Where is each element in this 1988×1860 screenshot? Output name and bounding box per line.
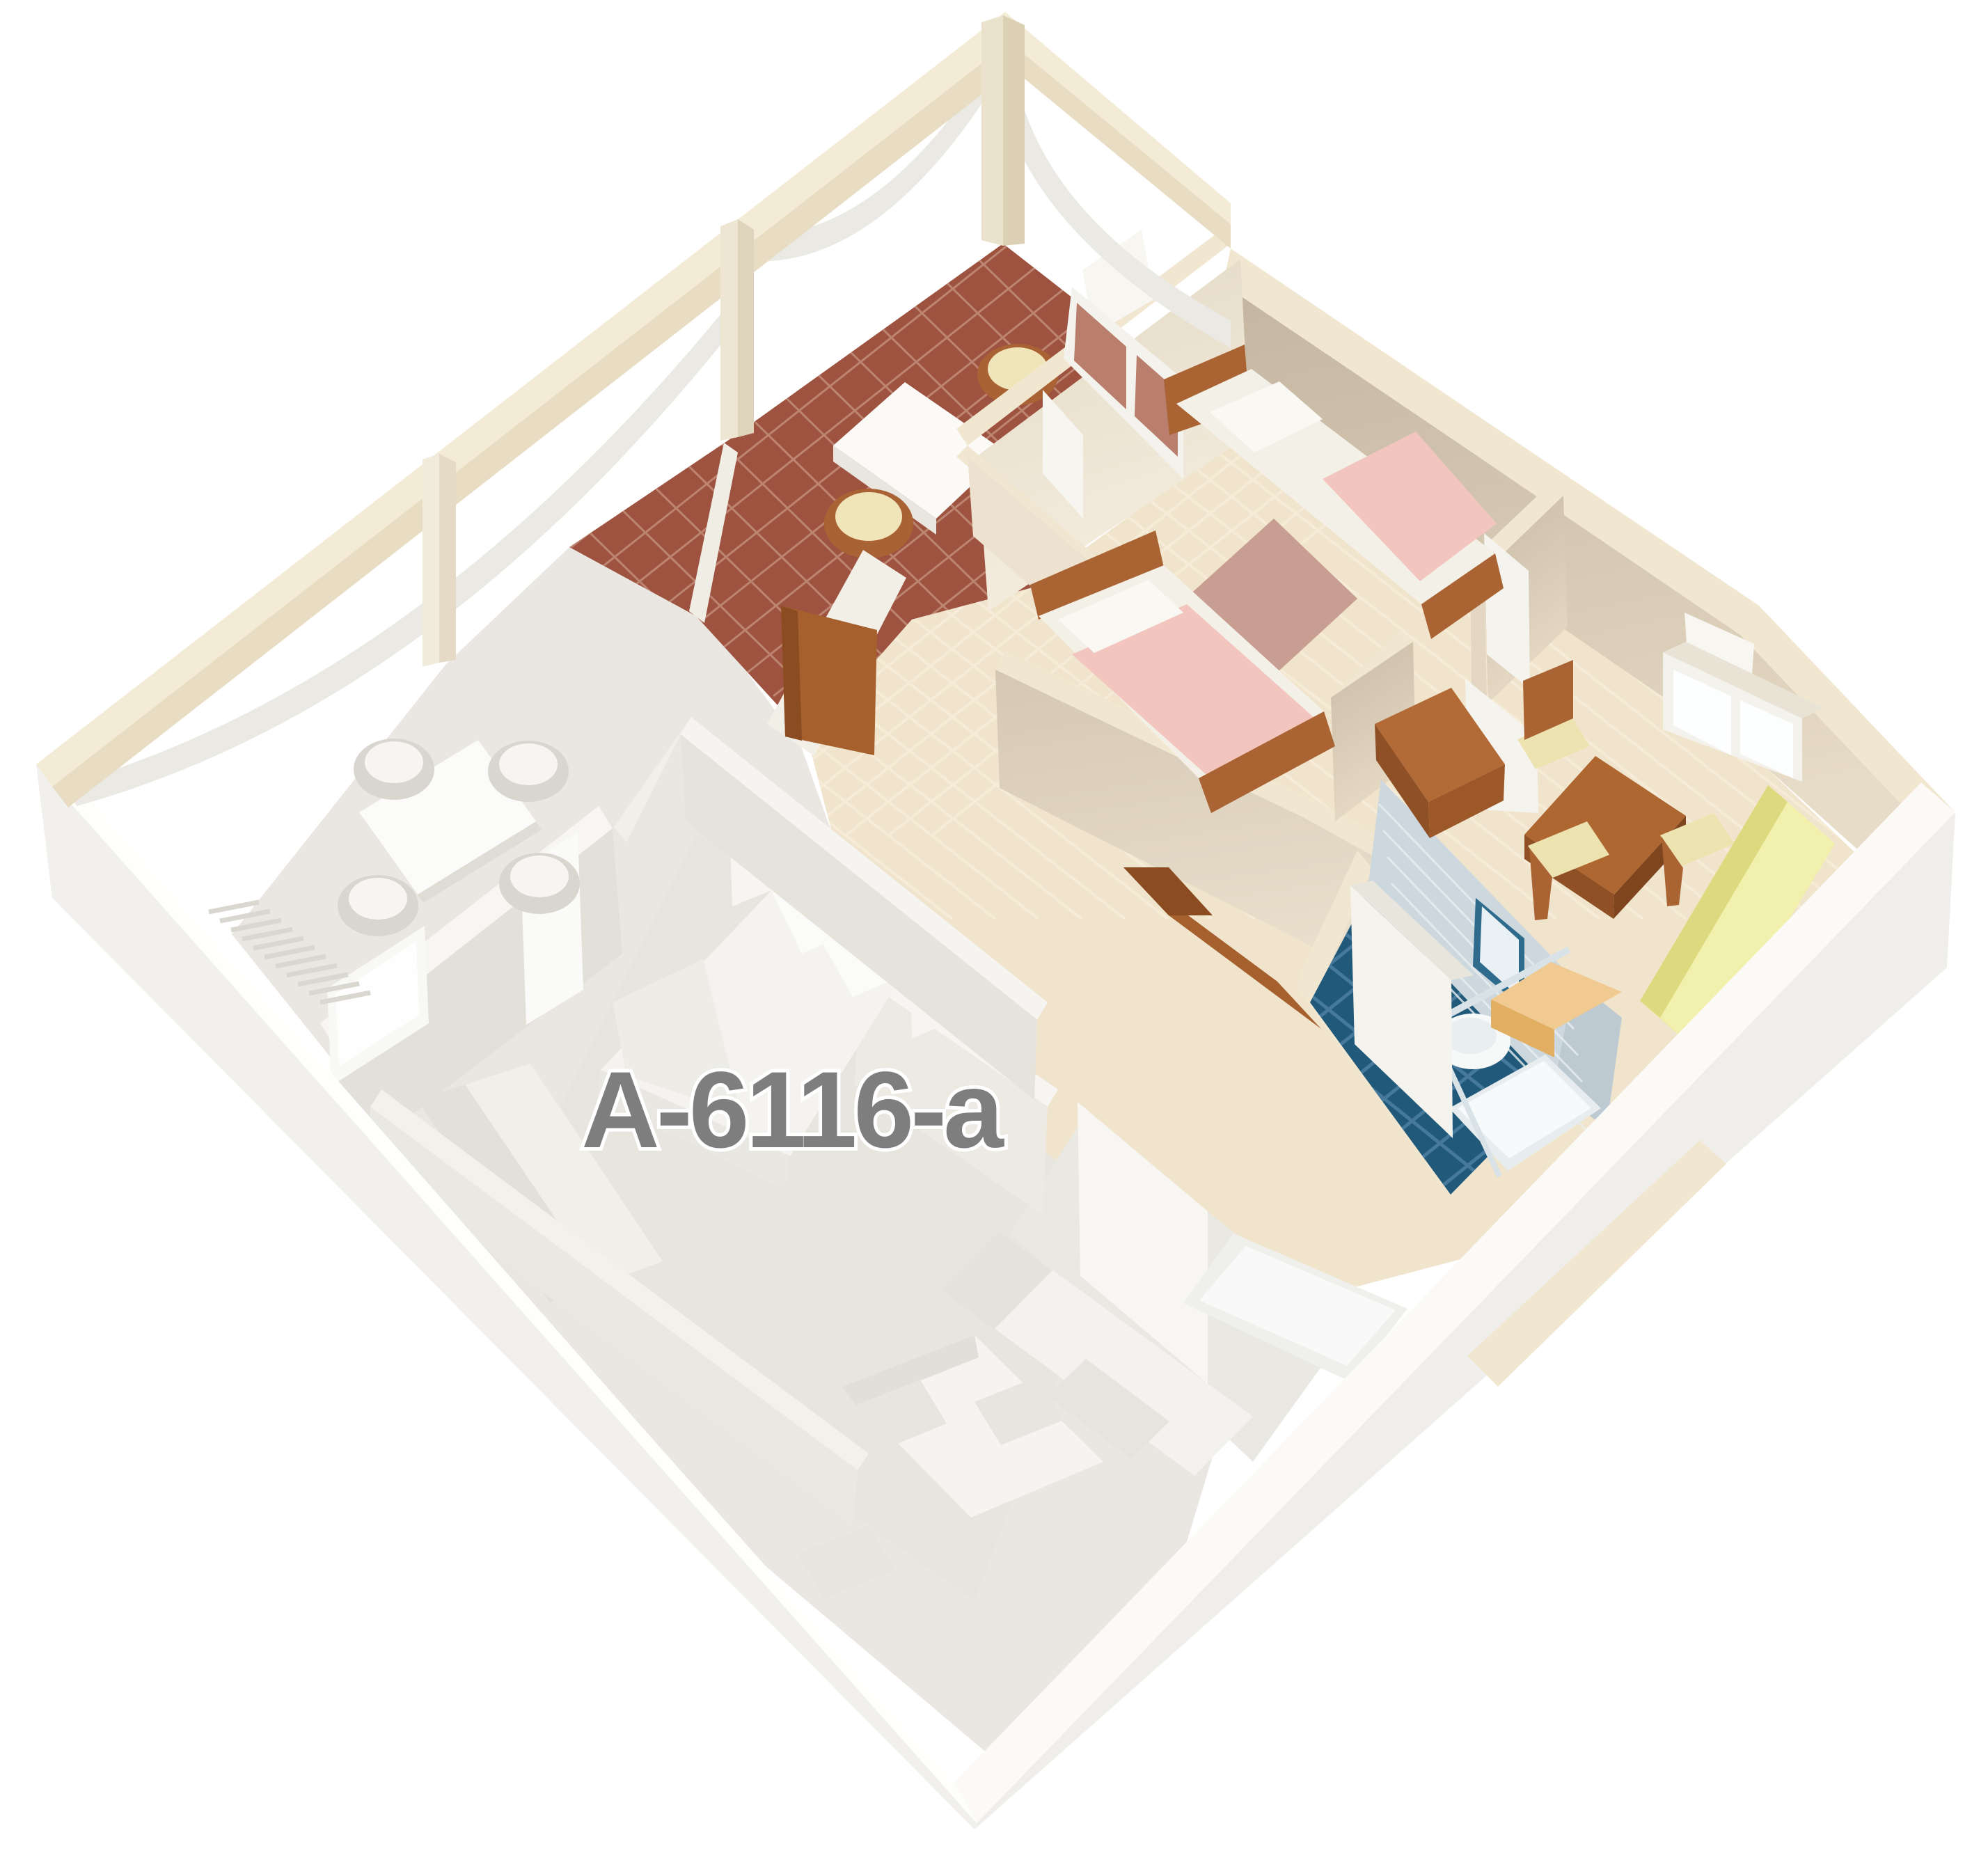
svg-text:A-6116-a: A-6116-a <box>581 1050 1004 1171</box>
